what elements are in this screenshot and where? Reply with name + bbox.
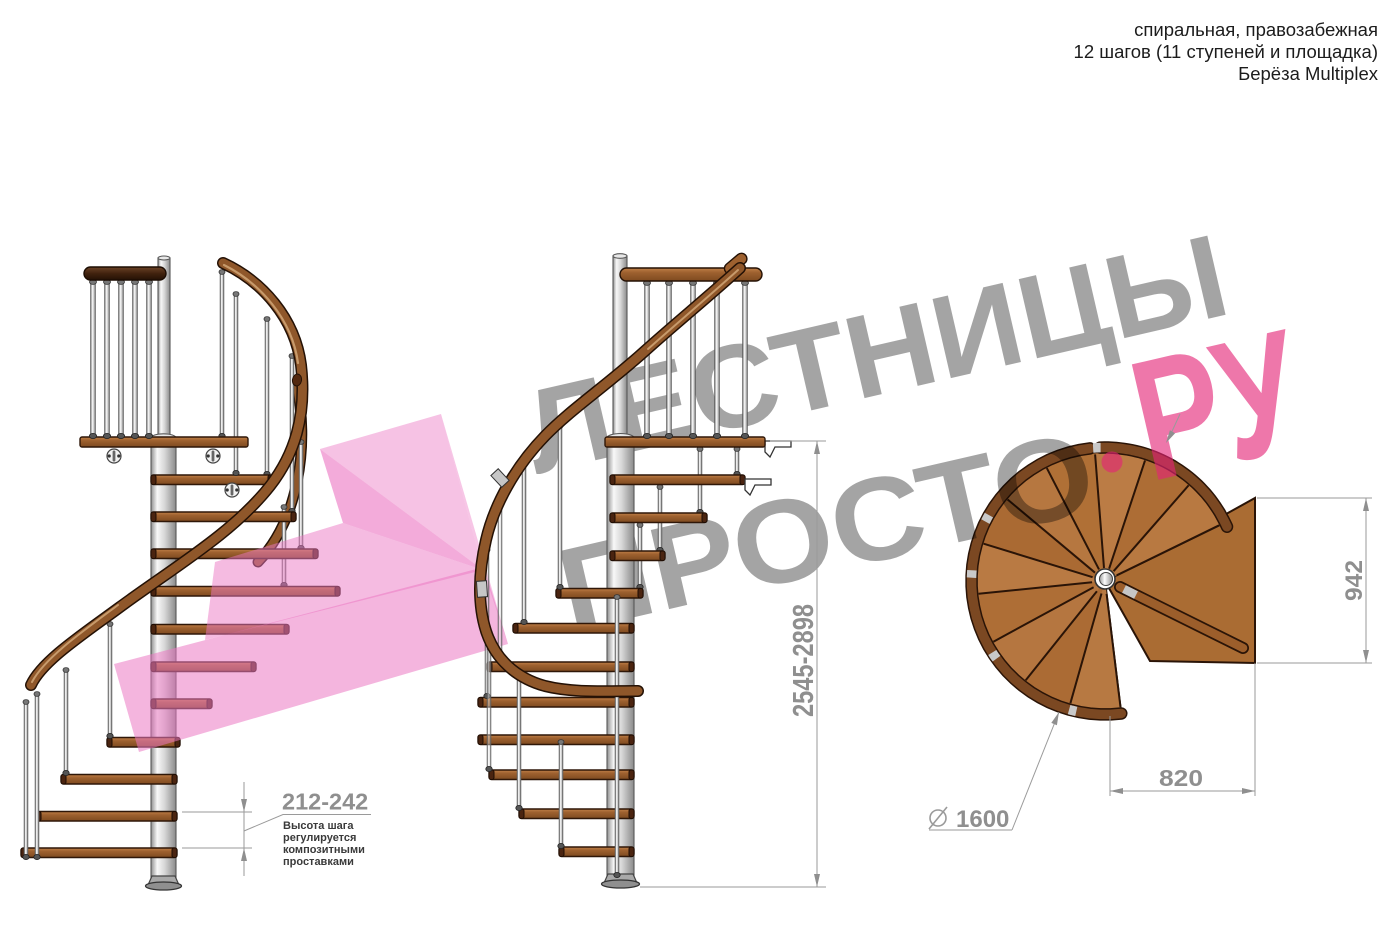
svg-text:Высота шага: Высота шага: [283, 820, 354, 832]
svg-text:проставками: проставками: [283, 856, 354, 868]
svg-text:спиральная, правозабежная: спиральная, правозабежная: [1134, 19, 1378, 40]
svg-text:1600: 1600: [956, 806, 1009, 833]
svg-text:820: 820: [1159, 765, 1203, 791]
svg-text:12 шагов (11 ступеней и площад: 12 шагов (11 ступеней и площадка): [1074, 41, 1378, 62]
svg-text:2545-2898: 2545-2898: [788, 604, 820, 717]
svg-text:композитными: композитными: [283, 844, 365, 856]
svg-text:942: 942: [1341, 560, 1368, 601]
svg-text:Берёза Multiplex: Берёза Multiplex: [1238, 63, 1379, 84]
svg-text:регулируется: регулируется: [283, 832, 356, 844]
svg-text:212-242: 212-242: [282, 789, 368, 815]
